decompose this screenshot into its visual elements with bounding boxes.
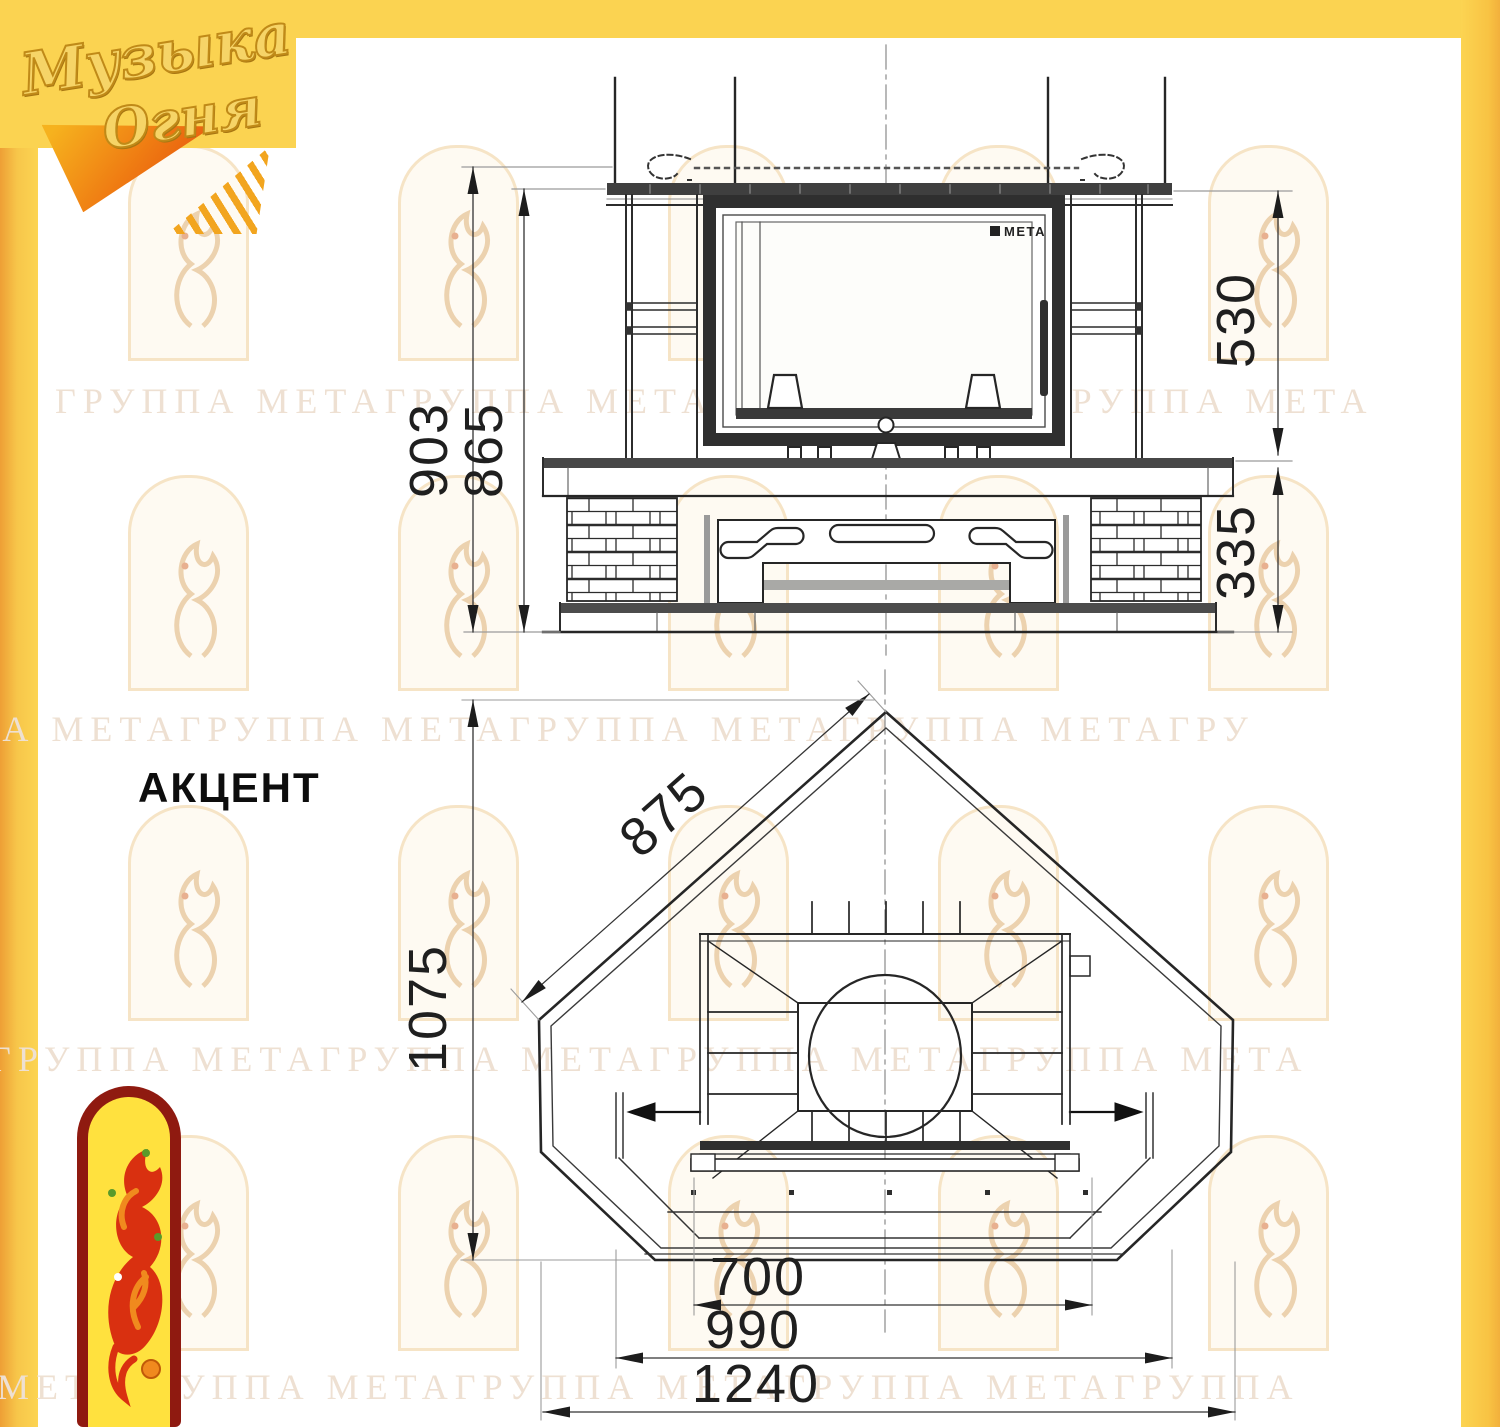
- rays-icon: [158, 146, 270, 234]
- dim-903-label: 903: [399, 402, 459, 498]
- side-tab: [1070, 956, 1090, 976]
- plan-dimensions: 875 1075 700 990 1240: [398, 681, 1235, 1420]
- page-title: АКЦЕНТ: [138, 764, 321, 812]
- door-handle: [1040, 300, 1048, 396]
- brick-base-left: [567, 498, 677, 601]
- corner-arch-logo: [77, 1086, 181, 1427]
- catalog-page: ГРУППА МЕТАГРУППА МЕТАГРУППА МЕТАГРУППА …: [0, 0, 1500, 1427]
- firebird-icon: [88, 1097, 170, 1427]
- arch-logo-inner: [88, 1097, 170, 1427]
- right-pillar: [1071, 195, 1142, 458]
- dim-865-label: 865: [454, 402, 514, 498]
- firebox-plan: [691, 902, 1090, 1178]
- front-view: МЕТА: [399, 45, 1292, 655]
- left-pillar: [626, 195, 697, 458]
- brand-mark-icon: [990, 226, 1000, 236]
- dim-875-label: 875: [608, 760, 720, 869]
- dim-335-label: 335: [1206, 504, 1266, 600]
- dim-990-label: 990: [705, 1300, 801, 1360]
- firebox-front: МЕТА: [703, 195, 1065, 459]
- andiron: [966, 375, 1000, 408]
- dim-530-label: 530: [1206, 272, 1266, 368]
- plan-bench-dots: [691, 1190, 1088, 1195]
- dim-1240-label: 1240: [692, 1354, 820, 1414]
- hearth-bench: [543, 458, 1233, 496]
- dim-700-label: 700: [710, 1247, 806, 1307]
- brick-base-right: [1091, 498, 1201, 601]
- plan-view: 875 1075 700 990 1240: [398, 670, 1235, 1420]
- clamp-hook-icon: [1081, 155, 1124, 180]
- clamp-hook-icon: [648, 155, 691, 180]
- insert-brand-label: МЕТА: [1004, 224, 1046, 239]
- dim-1075-label: 1075: [398, 944, 458, 1072]
- door-front-plan: [700, 1141, 1070, 1150]
- plinth: [543, 603, 1233, 632]
- andiron: [768, 375, 802, 408]
- apron-slot: [830, 525, 934, 542]
- brand-logo: Музыка Огня: [0, 0, 300, 245]
- air-control-knob: [879, 418, 894, 433]
- apron-panel: [707, 518, 1066, 603]
